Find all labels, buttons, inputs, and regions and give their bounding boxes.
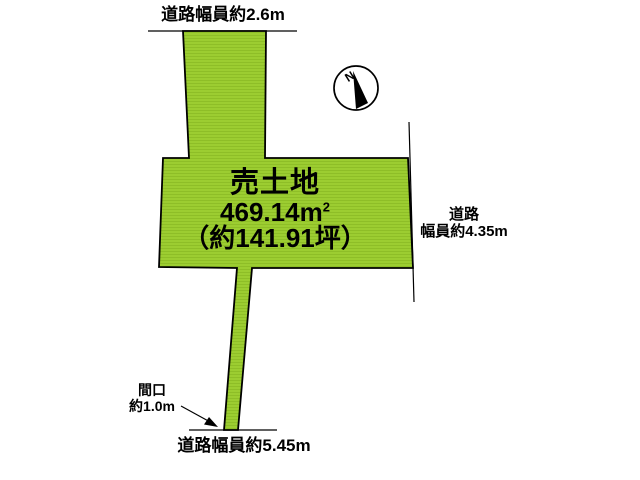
road-width-bottom-label: 道路幅員約5.45m xyxy=(168,436,320,455)
road-width-right-line2: 幅員約4.35m xyxy=(402,223,526,240)
road-width-right-line1: 道路 xyxy=(402,206,526,223)
frontage-line1: 間口 xyxy=(110,382,194,398)
road-width-right-label: 道路 幅員約4.35m xyxy=(402,206,526,240)
parcel-area: 469.14m2 xyxy=(163,199,387,225)
compass: N xyxy=(334,66,378,110)
frontage-line2: 約1.0m xyxy=(110,398,194,414)
parcel-area-exponent: 2 xyxy=(323,199,330,214)
parcel-info-block: 売土地 469.14m2 （約141.91坪） xyxy=(163,168,387,251)
land-plot-diagram: N 道路幅員約2.6m 道路 幅員約4.35m 道路幅員約5.45m 間口 約1… xyxy=(0,0,640,480)
frontage-arrow-head xyxy=(204,417,218,427)
road-width-top-label: 道路幅員約2.6m xyxy=(128,5,318,25)
parcel-title: 売土地 xyxy=(163,168,387,199)
parcel-area-tsubo: （約141.91坪） xyxy=(163,225,387,251)
frontage-label: 間口 約1.0m xyxy=(110,382,194,414)
